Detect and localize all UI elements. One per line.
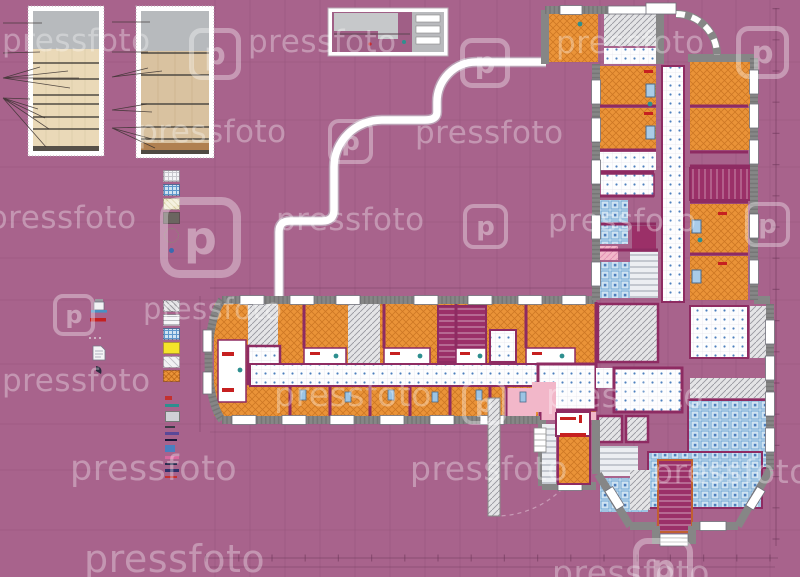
fixture-icon xyxy=(95,299,103,302)
legend-swatch-tiny-dot xyxy=(169,248,174,253)
entrance-hall xyxy=(598,304,658,362)
legend-swatch-blue-tile xyxy=(163,328,180,340)
legend-swatch-dark-solid xyxy=(163,212,180,224)
legend-mark xyxy=(165,396,172,400)
symbol-icons xyxy=(89,299,107,374)
legend-swatch-cream-hatch xyxy=(163,198,180,210)
legend-swatch-white-grid xyxy=(163,170,180,182)
future-extension-outline xyxy=(279,62,546,298)
legend-swatch-gray-hatch xyxy=(163,300,180,312)
legend-mark xyxy=(165,411,180,422)
legend-swatch-white-diag xyxy=(163,356,180,368)
legend-mark xyxy=(165,456,179,459)
legend-swatch-orange-hatch xyxy=(163,370,180,382)
legend-mark xyxy=(165,445,175,452)
legend-swatch-white-lined xyxy=(163,314,180,326)
legend-mark xyxy=(165,476,177,478)
legend-swatch-blue-tile xyxy=(163,184,180,196)
legend-swatch-dot-circle xyxy=(164,228,179,243)
corridor-right xyxy=(662,66,684,302)
red-bar-icon xyxy=(90,318,106,322)
legend-column-top xyxy=(163,170,180,253)
stair-hall xyxy=(690,168,754,200)
legend-swatch-yellow-solid xyxy=(163,342,180,354)
legend-mark xyxy=(165,439,177,441)
legend-mark xyxy=(165,404,179,407)
site-wall xyxy=(488,398,500,516)
detail-section-left xyxy=(28,6,104,156)
stock-photo-floor-plan: pressfotoppressfotoppressfotoppressfotop… xyxy=(0,0,800,577)
arrow-icon xyxy=(96,366,101,374)
legend-mark xyxy=(165,426,175,428)
legend-mark-list xyxy=(165,396,180,482)
legend-mark xyxy=(165,469,179,472)
stairwell-south xyxy=(658,460,692,532)
legend-mark xyxy=(165,463,177,465)
legend-mark xyxy=(165,432,179,435)
floor-plan-svg xyxy=(0,0,800,577)
title-block xyxy=(328,8,448,56)
document-icon xyxy=(93,346,105,360)
legend-column-main xyxy=(163,300,180,384)
detail-section-right xyxy=(136,6,214,158)
